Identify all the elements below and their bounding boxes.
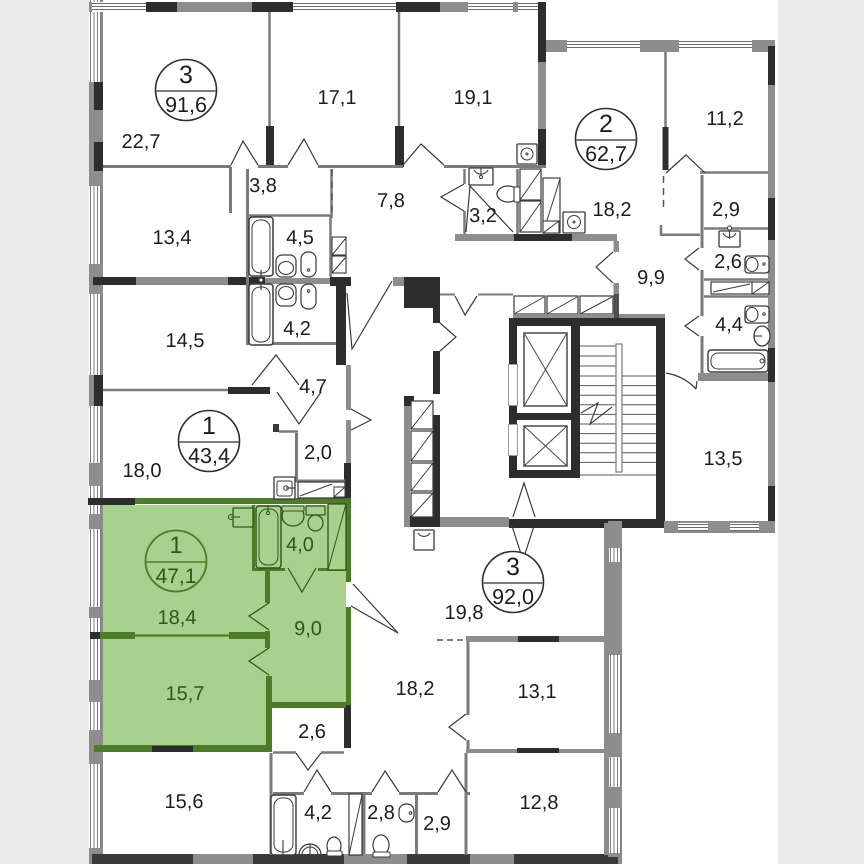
svg-text:2,0: 2,0 xyxy=(304,442,332,464)
svg-text:4,0: 4,0 xyxy=(286,534,314,556)
svg-text:18,4: 18,4 xyxy=(158,607,197,629)
svg-text:62,7: 62,7 xyxy=(585,142,627,166)
svg-text:11,2: 11,2 xyxy=(706,108,743,130)
svg-text:4,2: 4,2 xyxy=(283,318,311,340)
svg-text:18,2: 18,2 xyxy=(396,678,435,700)
svg-text:18,0: 18,0 xyxy=(123,460,162,482)
svg-text:4,5: 4,5 xyxy=(286,227,314,249)
svg-text:47,1: 47,1 xyxy=(156,565,197,588)
svg-text:2,6: 2,6 xyxy=(714,251,742,273)
svg-text:1: 1 xyxy=(202,412,216,440)
svg-text:7,8: 7,8 xyxy=(377,190,405,212)
svg-text:15,7: 15,7 xyxy=(166,683,205,705)
svg-text:3: 3 xyxy=(506,553,520,581)
svg-text:92,0: 92,0 xyxy=(492,585,534,609)
svg-text:14,5: 14,5 xyxy=(166,330,205,352)
svg-text:13,4: 13,4 xyxy=(153,227,192,249)
svg-text:19,1: 19,1 xyxy=(454,87,493,109)
svg-text:2,9: 2,9 xyxy=(423,813,451,835)
svg-text:91,6: 91,6 xyxy=(165,93,207,117)
svg-text:15,6: 15,6 xyxy=(165,791,204,813)
svg-text:22,7: 22,7 xyxy=(122,131,161,153)
svg-text:17,1: 17,1 xyxy=(318,87,357,109)
svg-text:2,8: 2,8 xyxy=(367,802,395,824)
svg-text:2,9: 2,9 xyxy=(712,199,740,221)
svg-text:3,2: 3,2 xyxy=(469,205,497,227)
svg-text:13,5: 13,5 xyxy=(704,448,743,470)
svg-text:2: 2 xyxy=(599,110,613,138)
svg-text:43,4: 43,4 xyxy=(188,444,230,468)
svg-text:4,7: 4,7 xyxy=(299,376,327,398)
svg-text:1: 1 xyxy=(169,532,182,559)
svg-text:3,8: 3,8 xyxy=(249,175,277,197)
svg-text:18,2: 18,2 xyxy=(593,199,632,221)
svg-text:2,6: 2,6 xyxy=(298,721,326,743)
svg-text:3: 3 xyxy=(179,61,193,89)
svg-text:19,8: 19,8 xyxy=(445,602,484,624)
svg-text:4,2: 4,2 xyxy=(304,802,332,824)
svg-text:4,4: 4,4 xyxy=(715,314,743,336)
svg-text:12,8: 12,8 xyxy=(520,792,559,814)
svg-text:9,9: 9,9 xyxy=(637,267,665,289)
svg-text:13,1: 13,1 xyxy=(518,681,557,703)
svg-text:9,0: 9,0 xyxy=(294,618,322,640)
